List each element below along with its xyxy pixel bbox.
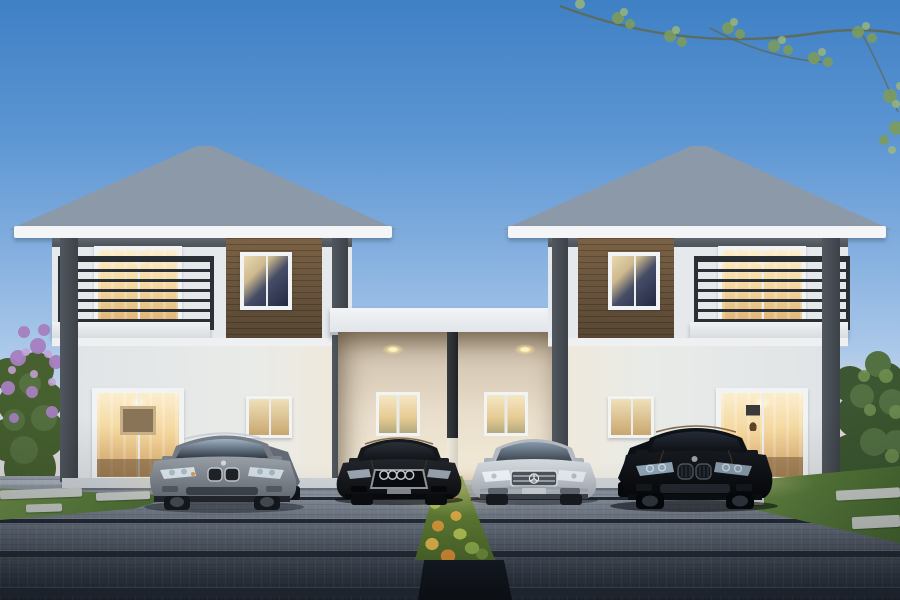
right-house-corner-trim: [822, 238, 840, 482]
stepping-stone: [26, 503, 62, 512]
stepping-stone: [852, 515, 900, 529]
scene-architectural-rendering: [0, 0, 900, 600]
right-house-hip-roof: [502, 146, 892, 230]
right-house-eave-fascia: [508, 226, 886, 238]
right-house-floor-band: [548, 338, 848, 346]
car-black-sedan-right: [606, 406, 782, 514]
car-silver-sedan-right-bay: [464, 420, 604, 506]
car-grey-sedan: [138, 412, 306, 514]
car-black-sedan-left-bay: [331, 420, 467, 506]
right-house-upper-window: [608, 252, 660, 310]
